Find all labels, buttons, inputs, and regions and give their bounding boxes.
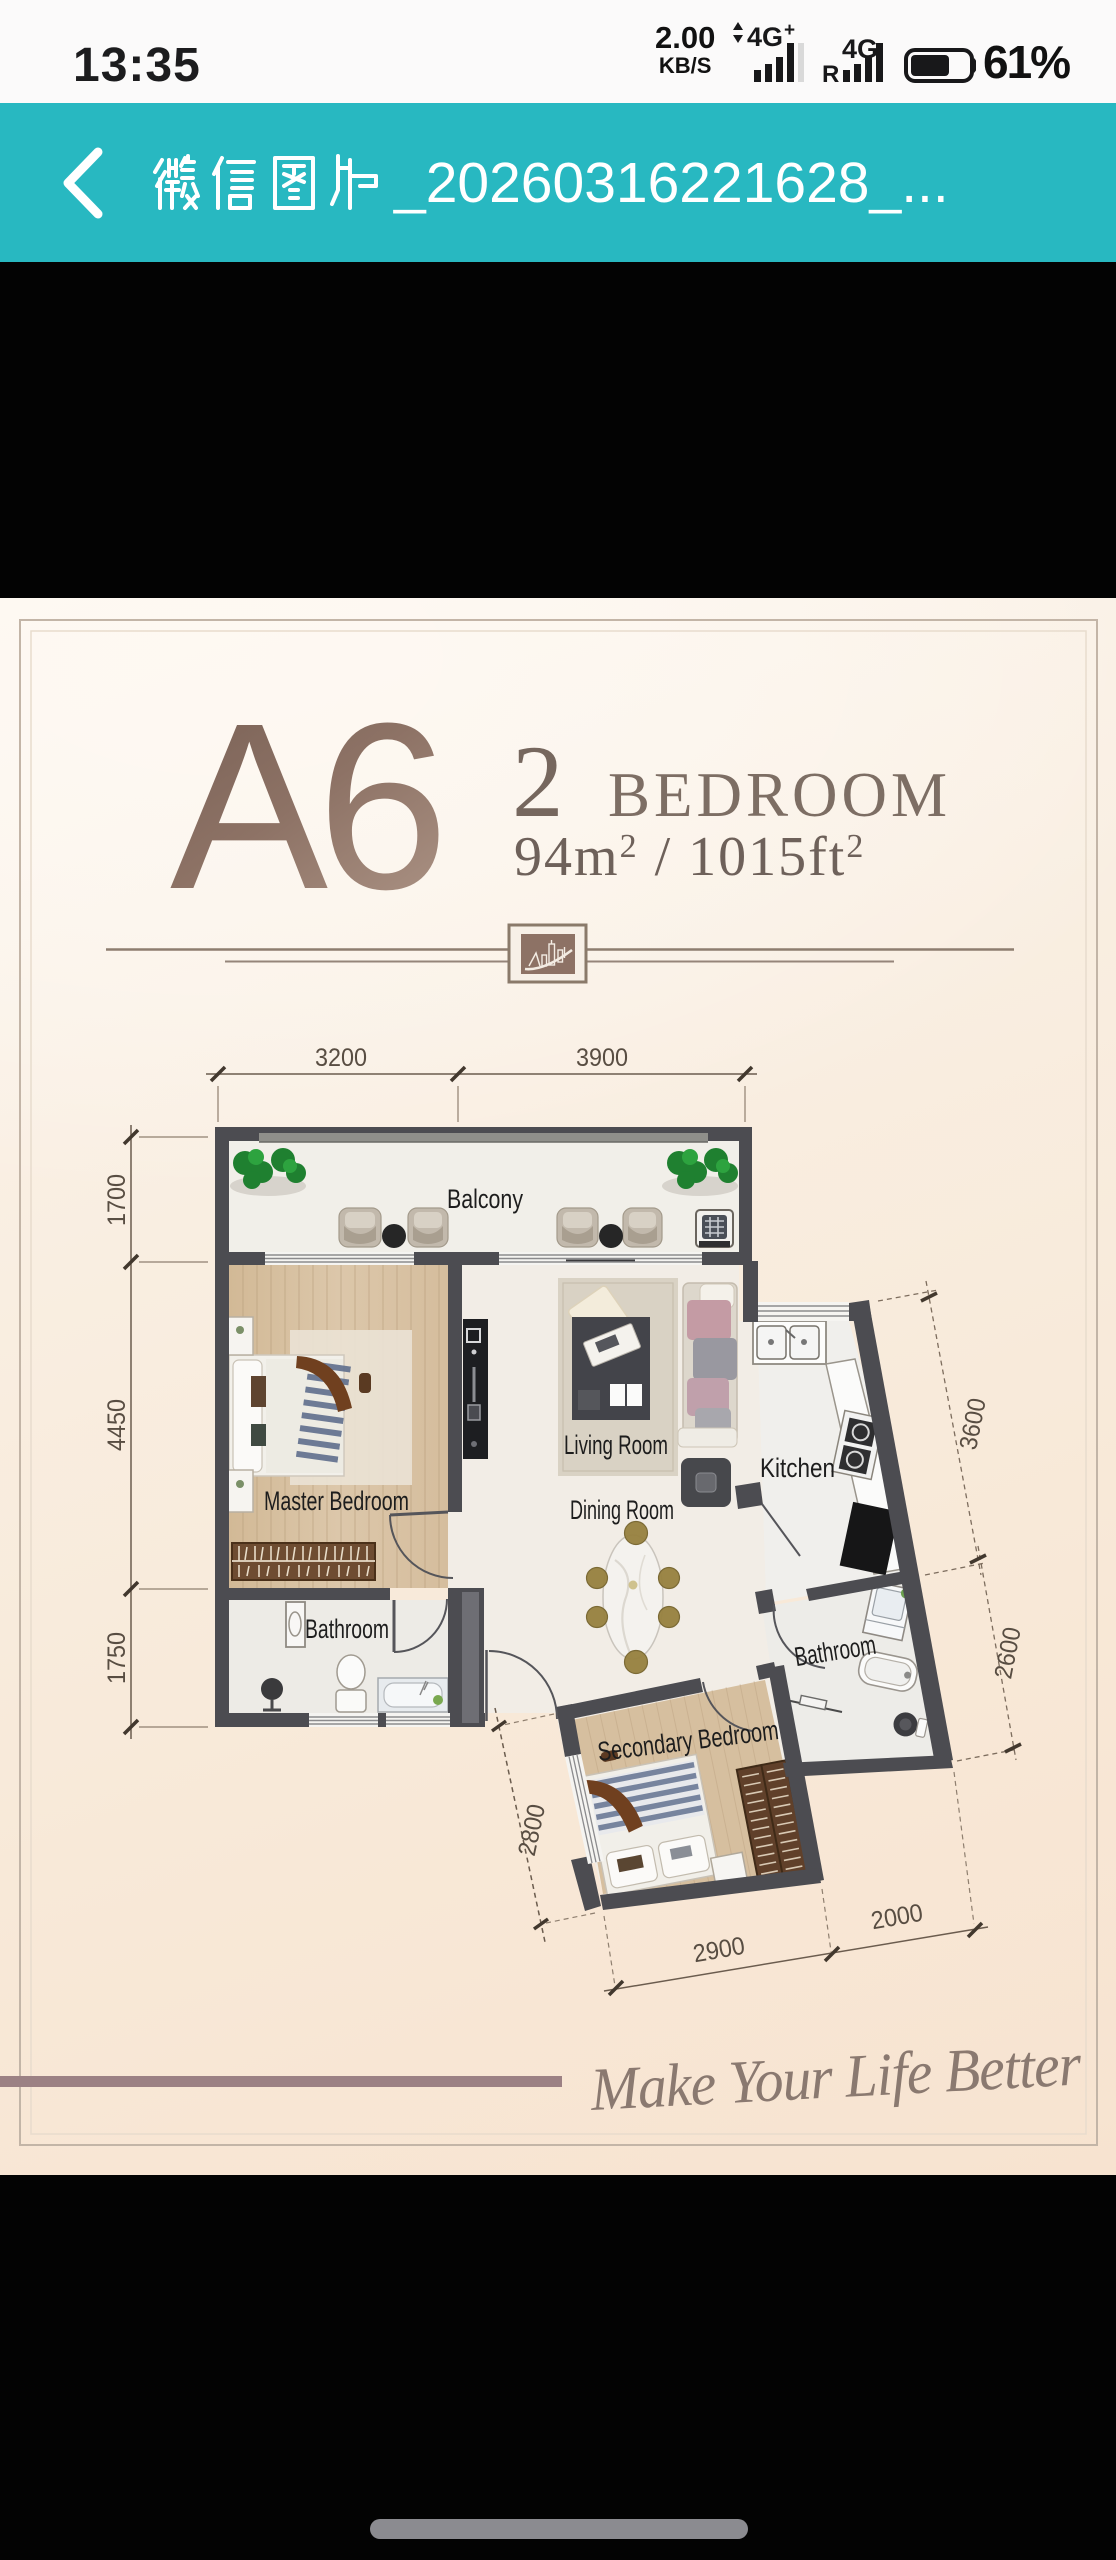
svg-text:Kitchen: Kitchen bbox=[760, 1453, 835, 1483]
svg-text:Bathroom: Bathroom bbox=[305, 1614, 389, 1644]
svg-text:4G: 4G bbox=[747, 22, 783, 52]
svg-text:94m2 / 1015ft2: 94m2 / 1015ft2 bbox=[514, 826, 865, 888]
svg-text:3200: 3200 bbox=[315, 1044, 367, 1072]
svg-text:4450: 4450 bbox=[103, 1399, 131, 1451]
svg-text:1700: 1700 bbox=[103, 1174, 131, 1226]
svg-text:Living Room: Living Room bbox=[564, 1430, 668, 1460]
svg-text:A6: A6 bbox=[170, 674, 439, 939]
svg-text:4G: 4G bbox=[842, 34, 878, 64]
svg-text:R: R bbox=[822, 61, 839, 88]
svg-text:Balcony: Balcony bbox=[447, 1184, 523, 1214]
svg-text:2000: 2000 bbox=[869, 1899, 925, 1936]
svg-text:Dining Room: Dining Room bbox=[570, 1495, 674, 1525]
svg-text:BEDROOM: BEDROOM bbox=[608, 760, 951, 830]
svg-text:1750: 1750 bbox=[103, 1632, 131, 1684]
svg-text:2900: 2900 bbox=[691, 1932, 747, 1969]
svg-text:3600: 3600 bbox=[954, 1396, 991, 1452]
svg-text:2800: 2800 bbox=[513, 1802, 551, 1859]
svg-text:3900: 3900 bbox=[576, 1044, 628, 1072]
svg-text:Master Bedroom: Master Bedroom bbox=[264, 1486, 409, 1516]
svg-text:2600: 2600 bbox=[989, 1625, 1026, 1681]
svg-text:+: + bbox=[784, 20, 795, 41]
svg-text:2: 2 bbox=[512, 725, 564, 839]
svg-text:Make Your Life Better: Make Your Life Better bbox=[588, 2031, 1083, 2124]
